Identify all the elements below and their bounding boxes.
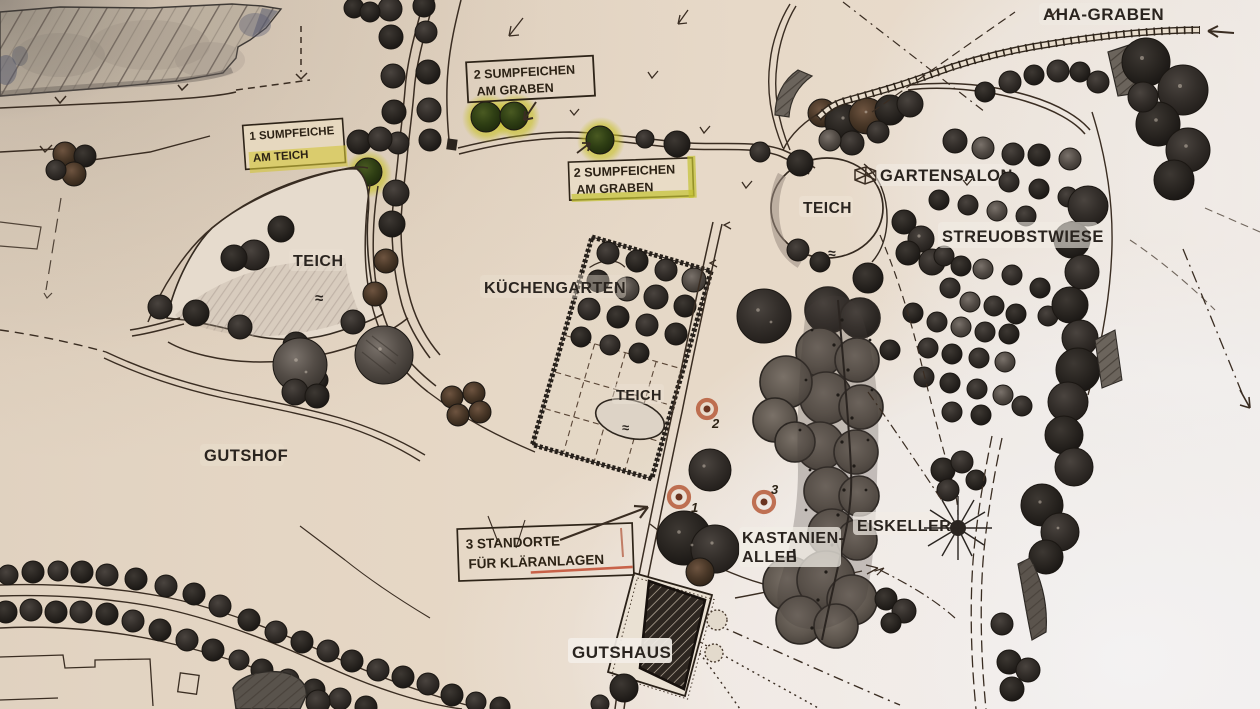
svg-text:≈: ≈ bbox=[622, 420, 630, 435]
svg-text:ALLEE: ALLEE bbox=[742, 549, 797, 566]
svg-text:GUTSHOF: GUTSHOF bbox=[204, 447, 288, 465]
svg-text:GUTSHAUS: GUTSHAUS bbox=[572, 643, 671, 662]
svg-text:AHA-GRABEN: AHA-GRABEN bbox=[1043, 5, 1164, 24]
svg-text:EISKELLER: EISKELLER bbox=[857, 518, 951, 535]
svg-text:≈: ≈ bbox=[315, 290, 324, 307]
svg-text:TEICH: TEICH bbox=[803, 200, 852, 217]
svg-text:KASTANIEN-: KASTANIEN- bbox=[742, 530, 844, 547]
svg-text:TEICH: TEICH bbox=[616, 388, 662, 404]
svg-text:KÜCHENGARTEN: KÜCHENGARTEN bbox=[484, 278, 626, 297]
svg-text:STREUOBSTWIESE: STREUOBSTWIESE bbox=[942, 228, 1104, 246]
svg-text:TEICH: TEICH bbox=[293, 253, 344, 270]
svg-text:3: 3 bbox=[771, 482, 779, 497]
svg-text:1: 1 bbox=[691, 500, 698, 515]
svg-text:GARTENSALON: GARTENSALON bbox=[880, 167, 1013, 185]
svg-text:AM GRABEN: AM GRABEN bbox=[576, 180, 654, 197]
svg-text:2: 2 bbox=[711, 416, 720, 431]
